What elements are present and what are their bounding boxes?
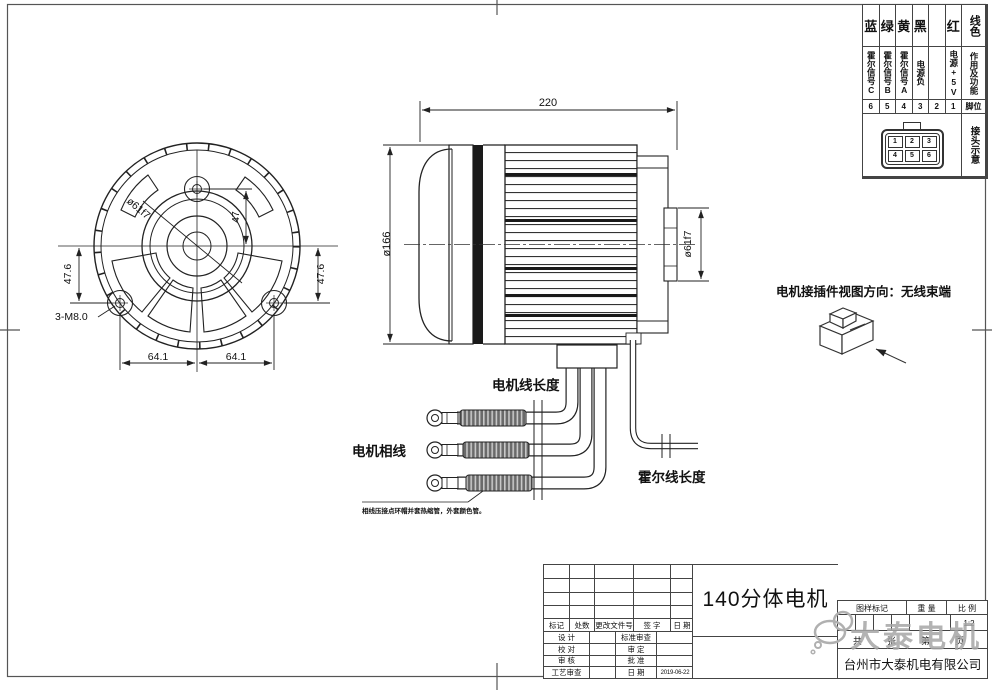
- thread-note-3m8: 3-M8.0: [55, 311, 88, 323]
- approval-label: 工艺审查: [544, 667, 589, 678]
- revision-table-empty: [543, 564, 694, 620]
- wire-sleeves: [460, 410, 532, 491]
- wire-pin-cell: 5: [880, 100, 896, 113]
- scale-value: 1:2: [951, 615, 987, 631]
- company-name: 台州市大泰机电有限公司: [838, 649, 987, 678]
- wire-color-cell: 黄: [896, 5, 912, 46]
- header-pin: 脚位: [962, 100, 985, 113]
- drawing-title: 140分体电机: [693, 583, 838, 613]
- approval-value: [657, 656, 693, 667]
- wire-function-cell: 电源负: [913, 47, 929, 99]
- wire-function-cell: 霍尔信号C: [863, 47, 879, 99]
- dim-body-dia: ø166: [381, 221, 393, 267]
- ring-terminals: [427, 410, 458, 491]
- dim-right-476: 47.6: [315, 252, 327, 296]
- approval-label: 审 定: [616, 644, 656, 655]
- wire-pin-cell: 6: [863, 100, 879, 113]
- wire-color-cell: [929, 5, 945, 46]
- wire-function-cell: 霍尔信号A: [896, 47, 912, 99]
- wire-color-cell: 红: [946, 5, 962, 46]
- motor-side-view: [383, 101, 709, 344]
- approval-label: 批 准: [616, 656, 656, 667]
- title-zone: 140分体电机: [692, 564, 838, 679]
- label-phase-wires: 电机相线: [352, 440, 406, 460]
- header-function: 作用及功能: [962, 47, 985, 99]
- header-wire-color: 线色: [962, 5, 985, 46]
- label-motor-wire-length: 电机线长度: [492, 374, 560, 394]
- wire-pin-cell: 4: [896, 100, 912, 113]
- approval-rows: 设 计 标准审查 校 对 审 定 审 核 批 准 工艺审查 日 期 2019-0…: [543, 631, 694, 679]
- scale-header: 比 例: [947, 601, 987, 615]
- wire-color-cell: 绿: [880, 5, 896, 46]
- approval-label: 日 期: [616, 667, 656, 678]
- approval-label: 标准审查: [616, 632, 656, 643]
- wire-function-cell: 电源+5V: [946, 47, 962, 99]
- sheet-count-text: 共 张 第 页: [838, 631, 987, 649]
- dim-top-hole-47: 47: [230, 197, 242, 237]
- connector-3d-sketch: [820, 308, 906, 363]
- header-connector: 接头示意: [962, 114, 985, 176]
- connector-pin: 6: [922, 150, 937, 162]
- wire-pin-cell: 3: [913, 100, 929, 113]
- wire-pin-cell: 1: [946, 100, 962, 113]
- wire-function-cell: [929, 47, 945, 99]
- cad-drawing-page: 蓝 绿 黄 黑 红 线色 霍尔信号C 霍尔信号B 霍尔信号A 电源负 电源+5V…: [0, 0, 992, 690]
- wire-pin-cell: 2: [929, 100, 945, 113]
- connector-view-caption: 电机接插件视图方向：无线束端: [776, 281, 951, 300]
- approval-label: 设 计: [544, 632, 589, 643]
- approval-label: 审 核: [544, 656, 589, 667]
- wire-function-cell: 霍尔信号B: [880, 47, 896, 99]
- company-row: 台州市大泰机电有限公司: [837, 648, 988, 679]
- dim-left-476: 47.6: [62, 252, 74, 296]
- phase-wire-note: 相线压接点环帽并套热缩管，外套颜色管。: [362, 505, 486, 515]
- weight-header: 重 量: [907, 601, 946, 615]
- dim-641-right: 64.1: [216, 351, 256, 363]
- wire-color-cell: 黑: [913, 5, 929, 46]
- stamp-header: 图样标记: [838, 601, 906, 615]
- approval-value: [657, 632, 693, 643]
- dim-length-220: 220: [528, 97, 568, 109]
- dim-spigot-dia-side: ø61f7: [682, 220, 694, 268]
- label-hall-wire-length: 霍尔线长度: [638, 466, 706, 486]
- title-underline: [693, 636, 838, 637]
- wire-color-cell: 蓝: [863, 5, 879, 46]
- approval-date-value: 2019-06-22: [657, 667, 693, 678]
- connector-pin: 2: [905, 136, 920, 148]
- approval-label: 校 对: [544, 644, 589, 655]
- table-connector: 1 2 3 4 5 6: [881, 122, 944, 169]
- dim-641-left: 64.1: [138, 351, 178, 363]
- wire-color-table: 蓝 绿 黄 黑 红 线色 霍尔信号C 霍尔信号B 霍尔信号A 电源负 电源+5V…: [862, 4, 988, 179]
- connector-tab: [903, 122, 921, 129]
- drawing-canvas: [0, 0, 992, 690]
- connector-pin: 4: [888, 150, 903, 162]
- connector-diagram-cell: 1 2 3 4 5 6: [863, 114, 961, 176]
- connector-pin: 3: [922, 136, 937, 148]
- sheet-row: 共 张 第 页: [837, 630, 988, 650]
- hall-connector: 1 2 3 4 5 6: [697, 424, 992, 466]
- approval-value: [657, 644, 693, 655]
- connector-pin: 1: [888, 136, 903, 148]
- connector-pin: 5: [905, 150, 920, 162]
- motor-front-view: [58, 143, 338, 372]
